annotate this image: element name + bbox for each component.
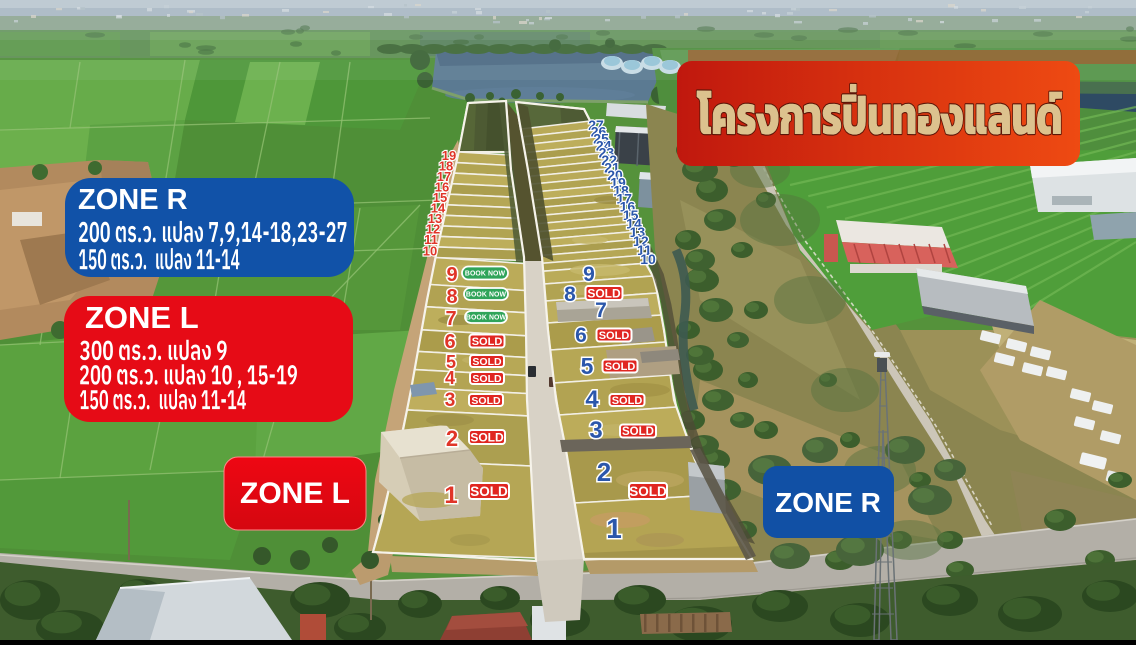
svg-text:SOLD: SOLD <box>605 361 636 373</box>
svg-text:1: 1 <box>606 513 622 544</box>
svg-text:SOLD: SOLD <box>612 395 643 407</box>
svg-text:SOLD: SOLD <box>470 484 508 499</box>
svg-text:8: 8 <box>446 286 457 308</box>
svg-text:ZONE R: ZONE R <box>78 184 188 216</box>
svg-text:SOLD: SOLD <box>587 286 621 300</box>
svg-text:SOLD: SOLD <box>599 330 630 342</box>
svg-text:SOLD: SOLD <box>622 426 654 438</box>
svg-text:8: 8 <box>564 283 576 306</box>
svg-text:ZONE L: ZONE L <box>85 300 199 335</box>
svg-text:SOLD: SOLD <box>472 356 502 368</box>
svg-text:ZONE L: ZONE L <box>240 477 350 510</box>
svg-text:ZONE R: ZONE R <box>775 487 881 518</box>
svg-text:3: 3 <box>445 390 456 411</box>
svg-text:5: 5 <box>581 353 594 379</box>
svg-text:10: 10 <box>640 251 656 267</box>
svg-text:BOOK NOW: BOOK NOW <box>466 315 507 322</box>
svg-text:SOLD: SOLD <box>472 336 503 348</box>
svg-text:SOLD: SOLD <box>472 373 502 385</box>
svg-text:6: 6 <box>575 324 587 347</box>
svg-text:6: 6 <box>444 331 455 353</box>
svg-text:4: 4 <box>585 386 599 413</box>
svg-text:BOOK NOW: BOOK NOW <box>465 271 506 278</box>
svg-text:BOOK NOW: BOOK NOW <box>466 292 507 299</box>
svg-text:SOLD: SOLD <box>629 484 667 499</box>
svg-text:9: 9 <box>446 264 457 286</box>
svg-text:4: 4 <box>445 368 455 388</box>
svg-text:3: 3 <box>589 417 602 444</box>
svg-text:SOLD: SOLD <box>470 430 504 444</box>
svg-text:10: 10 <box>423 244 437 259</box>
svg-text:SOLD: SOLD <box>471 395 501 407</box>
svg-text:9: 9 <box>583 263 595 286</box>
svg-text:7: 7 <box>595 299 607 322</box>
svg-text:7: 7 <box>445 308 456 330</box>
svg-text:1: 1 <box>444 482 457 509</box>
svg-text:2: 2 <box>597 457 611 487</box>
svg-text:2: 2 <box>446 426 458 451</box>
